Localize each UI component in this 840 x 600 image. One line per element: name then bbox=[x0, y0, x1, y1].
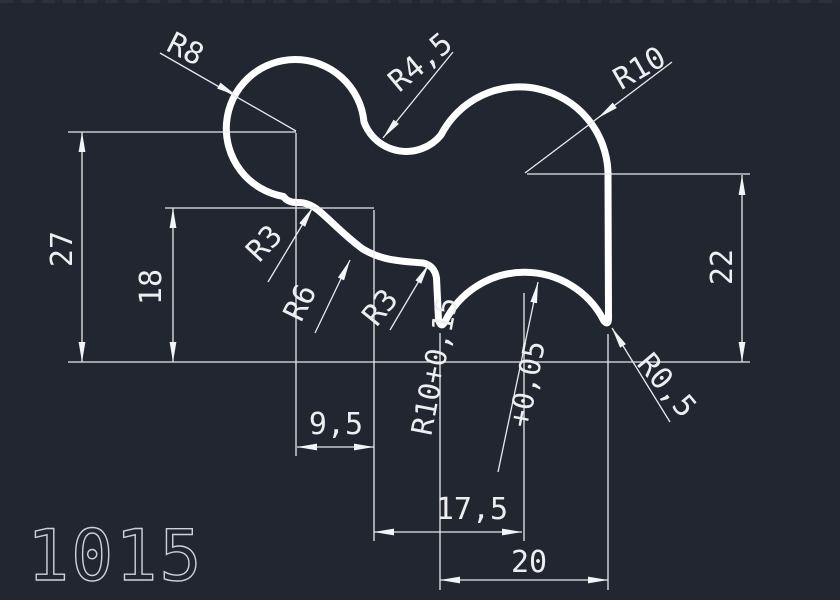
part-number: 1015 bbox=[27, 515, 204, 597]
dim-label-27: 27 bbox=[48, 231, 78, 267]
part-outline bbox=[226, 60, 608, 325]
dim-label-20: 20 bbox=[511, 548, 547, 578]
dim-label-18: 18 bbox=[137, 269, 167, 305]
dim-label-17-5: 17,5 bbox=[436, 495, 508, 525]
dim-label-22: 22 bbox=[708, 249, 738, 285]
radius-label-r10-tolerance-lower: +0,05 bbox=[498, 312, 555, 455]
radius-label-r10-tolerance-nominal: R10+0,15 bbox=[406, 294, 463, 437]
dim-label-9-5: 9,5 bbox=[309, 410, 363, 440]
cad-viewport[interactable]: 1015 R8 R4,5 R10 R3 R6 R3 R10+0,15 +0,05… bbox=[0, 0, 840, 600]
